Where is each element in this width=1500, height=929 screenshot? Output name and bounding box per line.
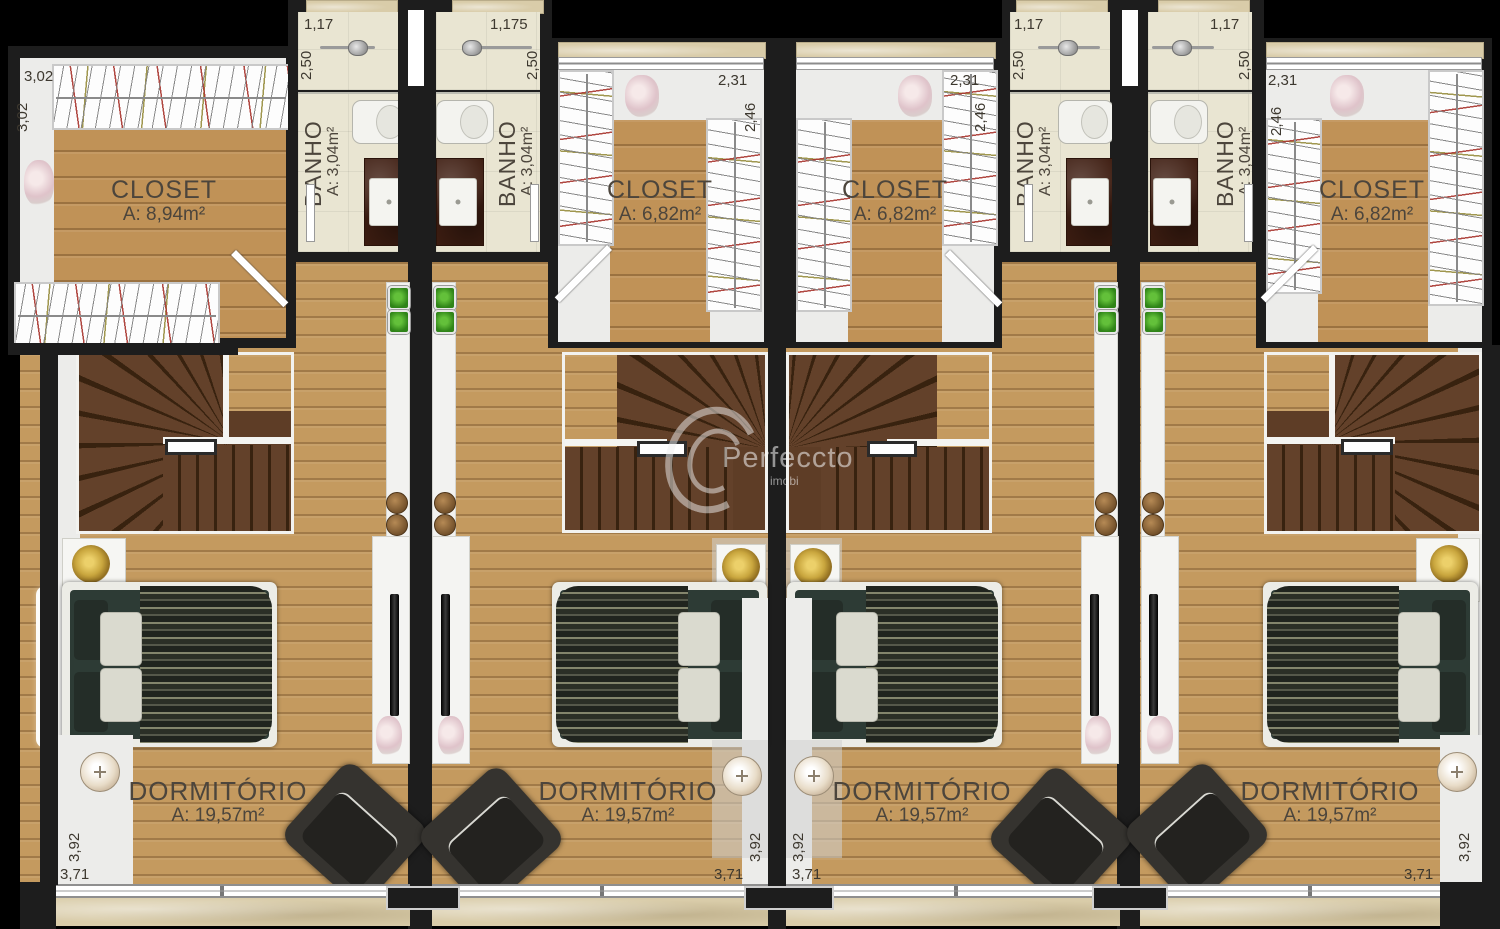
unit4-stairs bbox=[1264, 352, 1482, 534]
stool bbox=[1142, 492, 1164, 514]
unit3-closet-label: CLOSET bbox=[795, 176, 995, 205]
unit2-closet-dim-height: 2,46 bbox=[742, 88, 759, 132]
pillow bbox=[836, 668, 878, 722]
unit3-stairs-newel bbox=[867, 441, 917, 457]
unit2-gold-flower-decor bbox=[722, 548, 760, 586]
unit4-right-outer-wall bbox=[1482, 345, 1500, 885]
unit1-window bbox=[52, 884, 410, 898]
unit4-banho-door bbox=[1244, 184, 1253, 242]
plant-pot bbox=[434, 286, 456, 310]
unit3-closet-area: A: 6,82m² bbox=[795, 204, 995, 226]
unit1-dorm-dim-width: 3,71 bbox=[60, 866, 89, 883]
unit3-dorm-area: A: 19,57m² bbox=[802, 805, 1042, 827]
unit2-banho-dim-width: 1,175 bbox=[490, 16, 528, 33]
unit2-toilet bbox=[436, 100, 494, 144]
unit3-closet-floor bbox=[848, 120, 942, 342]
unit1-stairs-newel bbox=[165, 439, 217, 455]
unit2-stairs-landing bbox=[565, 355, 617, 447]
unit2-closet-dim-width: 2,31 bbox=[718, 72, 747, 89]
unit4-stairs-newel bbox=[1341, 439, 1393, 455]
unit3-closet-dim-width: 2,31 bbox=[950, 72, 979, 89]
unit4-closet-dim-height: 2,46 bbox=[1268, 92, 1285, 136]
flower-decor bbox=[376, 716, 402, 756]
unit4-stairs-landing bbox=[1267, 355, 1333, 411]
unit3-dorm-dim-height: 3,92 bbox=[790, 802, 807, 862]
unit3-toilet bbox=[1058, 100, 1114, 144]
unit1-banho-door bbox=[306, 184, 315, 242]
wall-cross-3-4 bbox=[1092, 886, 1168, 910]
unit4-closet-dim-width: 2,31 bbox=[1268, 72, 1297, 89]
unit3-window bbox=[786, 884, 1120, 898]
floor-plan: CLOSET A: 8,94m² 3,02 3,02 1,17 2,50 BAN… bbox=[0, 0, 1500, 929]
unit4-toilet bbox=[1150, 100, 1208, 144]
unit1-closet-dim-width: 3,02 bbox=[24, 68, 53, 85]
unit1-closet-label: CLOSET bbox=[64, 176, 264, 205]
unit1-dorm-area: A: 19,57m² bbox=[98, 805, 338, 827]
plant-pot bbox=[434, 310, 456, 334]
party-wall-2-3 bbox=[768, 38, 786, 929]
shaft-3-4-slot bbox=[1122, 10, 1138, 86]
unit3-closet-dim-height: 2,46 bbox=[972, 88, 989, 132]
bottom-right-corner-wall bbox=[1440, 882, 1500, 929]
unit3-stairs-landing bbox=[937, 355, 989, 447]
unit2-window bbox=[432, 884, 768, 898]
unit2-dorm-area: A: 19,57m² bbox=[508, 805, 748, 827]
pillow bbox=[678, 612, 720, 666]
unit1-duvet bbox=[140, 586, 272, 743]
unit2-window-sill bbox=[432, 898, 768, 926]
stool bbox=[386, 492, 408, 514]
unit1-left-outer-wall bbox=[40, 345, 58, 885]
unit4-window bbox=[1140, 884, 1478, 898]
stool bbox=[1142, 514, 1164, 536]
pillow bbox=[836, 612, 878, 666]
unit3-banho-door bbox=[1024, 184, 1033, 242]
unit2-dorm-dim-width: 3,71 bbox=[714, 866, 743, 883]
unit3-sink bbox=[1071, 178, 1109, 226]
unit1-dorm-label: DORMITÓRIO bbox=[98, 776, 338, 807]
unit4-gold-flower-decor bbox=[1430, 545, 1468, 583]
unit1-shower-head-icon bbox=[348, 40, 368, 56]
flower-decor bbox=[1085, 716, 1111, 756]
unit2-duvet bbox=[556, 586, 688, 743]
unit2-banho-label: BANHO bbox=[494, 92, 521, 207]
unit1-stairs bbox=[76, 352, 294, 534]
shaft-1-2-slot bbox=[408, 10, 424, 86]
unit3-banho-dim-height: 2,50 bbox=[1010, 36, 1027, 80]
unit3-duvet bbox=[866, 586, 998, 743]
unit3-closet-flower-decor bbox=[898, 75, 932, 117]
unit2-tv bbox=[441, 594, 450, 716]
unit2-banho-area: A: 3,04m² bbox=[519, 96, 537, 196]
unit1-clothes-rack-top bbox=[52, 64, 290, 130]
unit2-closet-label: CLOSET bbox=[560, 176, 760, 205]
stool bbox=[434, 492, 456, 514]
unit3-banho-area: A: 3,04m² bbox=[1037, 96, 1055, 196]
unit3-tv bbox=[1090, 594, 1099, 716]
plant-pot bbox=[1143, 286, 1165, 310]
unit2-dorm-label: DORMITÓRIO bbox=[508, 776, 748, 807]
unit3-gold-flower-decor bbox=[794, 548, 832, 586]
unit4-banho-area: A: 3,04m² bbox=[1237, 96, 1255, 196]
unit1-stairs-rail-v bbox=[223, 355, 229, 443]
unit3-stairs-treads bbox=[821, 447, 989, 530]
unit1-closet-dim-height: 3,02 bbox=[14, 88, 31, 132]
unit1-closet-flower-decor bbox=[24, 160, 54, 206]
stool bbox=[1095, 492, 1117, 514]
unit1-clothes-rack-bottom bbox=[14, 282, 220, 348]
unit4-duvet bbox=[1267, 586, 1399, 743]
unit4-stairs-rail-v bbox=[1329, 355, 1335, 443]
wall-cross-1-2 bbox=[386, 886, 460, 910]
unit4-closet-area: A: 6,82m² bbox=[1272, 204, 1472, 226]
unit1-gold-flower-decor bbox=[72, 545, 110, 583]
unit3-closet-window bbox=[796, 57, 994, 70]
unit3-stairs bbox=[786, 352, 992, 533]
unit4-tv bbox=[1149, 594, 1158, 716]
unit4-closet-window bbox=[1266, 57, 1482, 70]
pillow bbox=[100, 612, 142, 666]
pillow bbox=[1398, 612, 1440, 666]
plant-pot bbox=[388, 310, 410, 334]
unit1-tv bbox=[390, 594, 399, 716]
unit4-banho-dim-height: 2,50 bbox=[1236, 36, 1253, 80]
wall-cross-2-3 bbox=[744, 886, 834, 910]
flower-decor bbox=[1147, 716, 1173, 756]
unit3-stairs-winder bbox=[789, 355, 937, 447]
plant-pot bbox=[388, 286, 410, 310]
unit2-closet-area: A: 6,82m² bbox=[560, 204, 760, 226]
unit2-banho-dim-height: 2,50 bbox=[524, 36, 541, 80]
plant-pot bbox=[1143, 310, 1165, 334]
unit1-stairs-landing bbox=[225, 355, 291, 411]
unit2-shower-head-icon bbox=[462, 40, 482, 56]
plant-pot bbox=[1096, 286, 1118, 310]
stool bbox=[1095, 514, 1117, 536]
unit3-banho-dim-width: 1,17 bbox=[1014, 16, 1043, 33]
unit4-sink bbox=[1153, 178, 1191, 226]
plant-pot bbox=[1096, 310, 1118, 334]
unit4-window-sill bbox=[1140, 898, 1478, 926]
unit1-banho-area: A: 3,04m² bbox=[325, 96, 343, 196]
unit4-closet-flower-decor bbox=[1330, 75, 1364, 117]
unit1-closet-bottom-wall bbox=[8, 343, 238, 355]
unit4-closet-label: CLOSET bbox=[1272, 176, 1472, 205]
unit3-shower-head-icon bbox=[1058, 40, 1078, 56]
pillow bbox=[678, 668, 720, 722]
unit4-shower-head-icon bbox=[1172, 40, 1192, 56]
unit4-dorm-area: A: 19,57m² bbox=[1210, 805, 1450, 827]
unit3-dorm-dim-width: 3,71 bbox=[792, 866, 821, 883]
unit4-stairs-treads bbox=[1267, 445, 1395, 531]
unit2-sink bbox=[439, 178, 477, 226]
stool bbox=[434, 514, 456, 536]
unit1-window-sill bbox=[52, 898, 410, 926]
stool bbox=[386, 514, 408, 536]
unit4-banho-label: BANHO bbox=[1212, 92, 1239, 207]
pillow bbox=[1398, 668, 1440, 722]
unit3-dorm-label: DORMITÓRIO bbox=[802, 776, 1042, 807]
unit2-banho-door bbox=[530, 184, 539, 242]
unit4-dorm-label: DORMITÓRIO bbox=[1210, 776, 1450, 807]
flower-decor bbox=[438, 716, 464, 756]
unit1-closet-area: A: 8,94m² bbox=[64, 204, 264, 226]
unit4-dorm-dim-width: 3,71 bbox=[1404, 866, 1433, 883]
unit3-window-sill bbox=[786, 898, 1120, 926]
unit2-dorm-dim-height: 3,92 bbox=[747, 802, 764, 862]
pillow bbox=[100, 668, 142, 722]
unit1-banho-dim-width: 1,17 bbox=[304, 16, 333, 33]
unit2-closet-floor bbox=[610, 120, 710, 342]
unit4-dorm-dim-height: 3,92 bbox=[1456, 802, 1473, 862]
unit2-closet-flower-decor bbox=[625, 75, 659, 117]
bottom-left-corner-wall bbox=[20, 882, 56, 929]
unit2-closet-window bbox=[558, 57, 764, 70]
unit1-dorm-dim-height: 3,92 bbox=[66, 802, 83, 862]
unit1-stairs-treads bbox=[163, 445, 291, 531]
unit4-closet-floor bbox=[1318, 120, 1428, 342]
unit1-banho-dim-height: 2,50 bbox=[298, 36, 315, 80]
unit4-banho-dim-width: 1,17 bbox=[1210, 16, 1239, 33]
